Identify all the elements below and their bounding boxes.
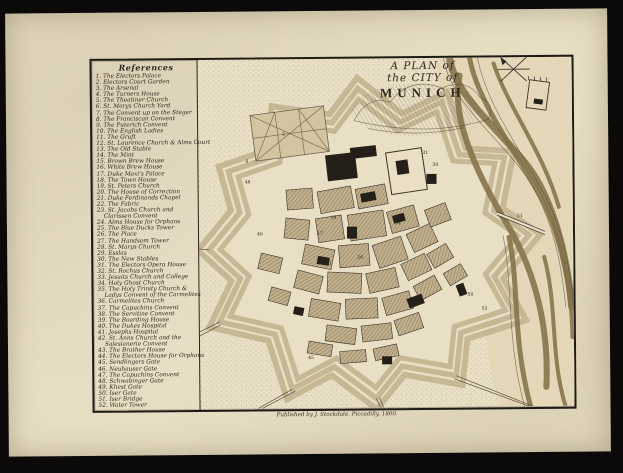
map-number-label: 5 [346, 175, 349, 181]
reference-item: 42. St. Anns Church and theSalesianerie … [98, 335, 199, 348]
references-list: 1. The Electors Palace2. Electors Court … [96, 73, 200, 409]
scan-background: References 1. The Electors Palace2. Elec… [0, 0, 623, 473]
map-number-label: 1 [338, 161, 341, 167]
map-number-label: 45 [308, 355, 314, 361]
map-number-label: 30 [432, 162, 438, 168]
map-number-label: 28 [367, 196, 373, 202]
map-number-label: 31 [422, 150, 428, 156]
map-sheet: References 1. The Electors Palace2. Elec… [5, 8, 611, 456]
map-number-label: 3 [403, 166, 406, 172]
imprint-line: Published by J. Stockdale, Piccadilly, 1… [277, 411, 398, 418]
map-number-label: 52 [482, 305, 488, 311]
map-number-label: 51 [517, 213, 523, 219]
court-garden [250, 106, 329, 161]
map-number-label: 33 [325, 261, 331, 267]
map-number-label: 14 [331, 215, 337, 221]
references-panel: References 1. The Electors Palace2. Elec… [91, 60, 200, 411]
munich-map-svg: 4842133130528141719342633404645505152 [197, 57, 574, 409]
reference-item: 35. The Holy Trinity Church &Ladys Conve… [97, 286, 198, 299]
arsenal-block [386, 148, 428, 195]
reference-item: 52. Water Tower [98, 402, 199, 409]
map-number-label: 4 [245, 159, 248, 165]
map-number-label: 40 [416, 300, 422, 306]
map-number-label: 46 [257, 231, 263, 237]
engraved-plate: References 1. The Electors Palace2. Elec… [89, 55, 576, 413]
map-number-label: 19 [351, 233, 357, 239]
map-area: 4842133130528141719342633404645505152 A … [197, 57, 574, 410]
map-number-label: 17 [317, 231, 323, 237]
map-number-label: 34 [395, 220, 401, 226]
map-number-label: 48 [245, 180, 251, 186]
reference-item: 23. St. Jacobs Church andClarissen Conve… [97, 207, 198, 220]
map-number-label: 2 [282, 131, 285, 137]
references-title: References [96, 62, 197, 73]
map-number-label: 26 [357, 255, 363, 261]
map-number-label: 50 [468, 292, 474, 298]
